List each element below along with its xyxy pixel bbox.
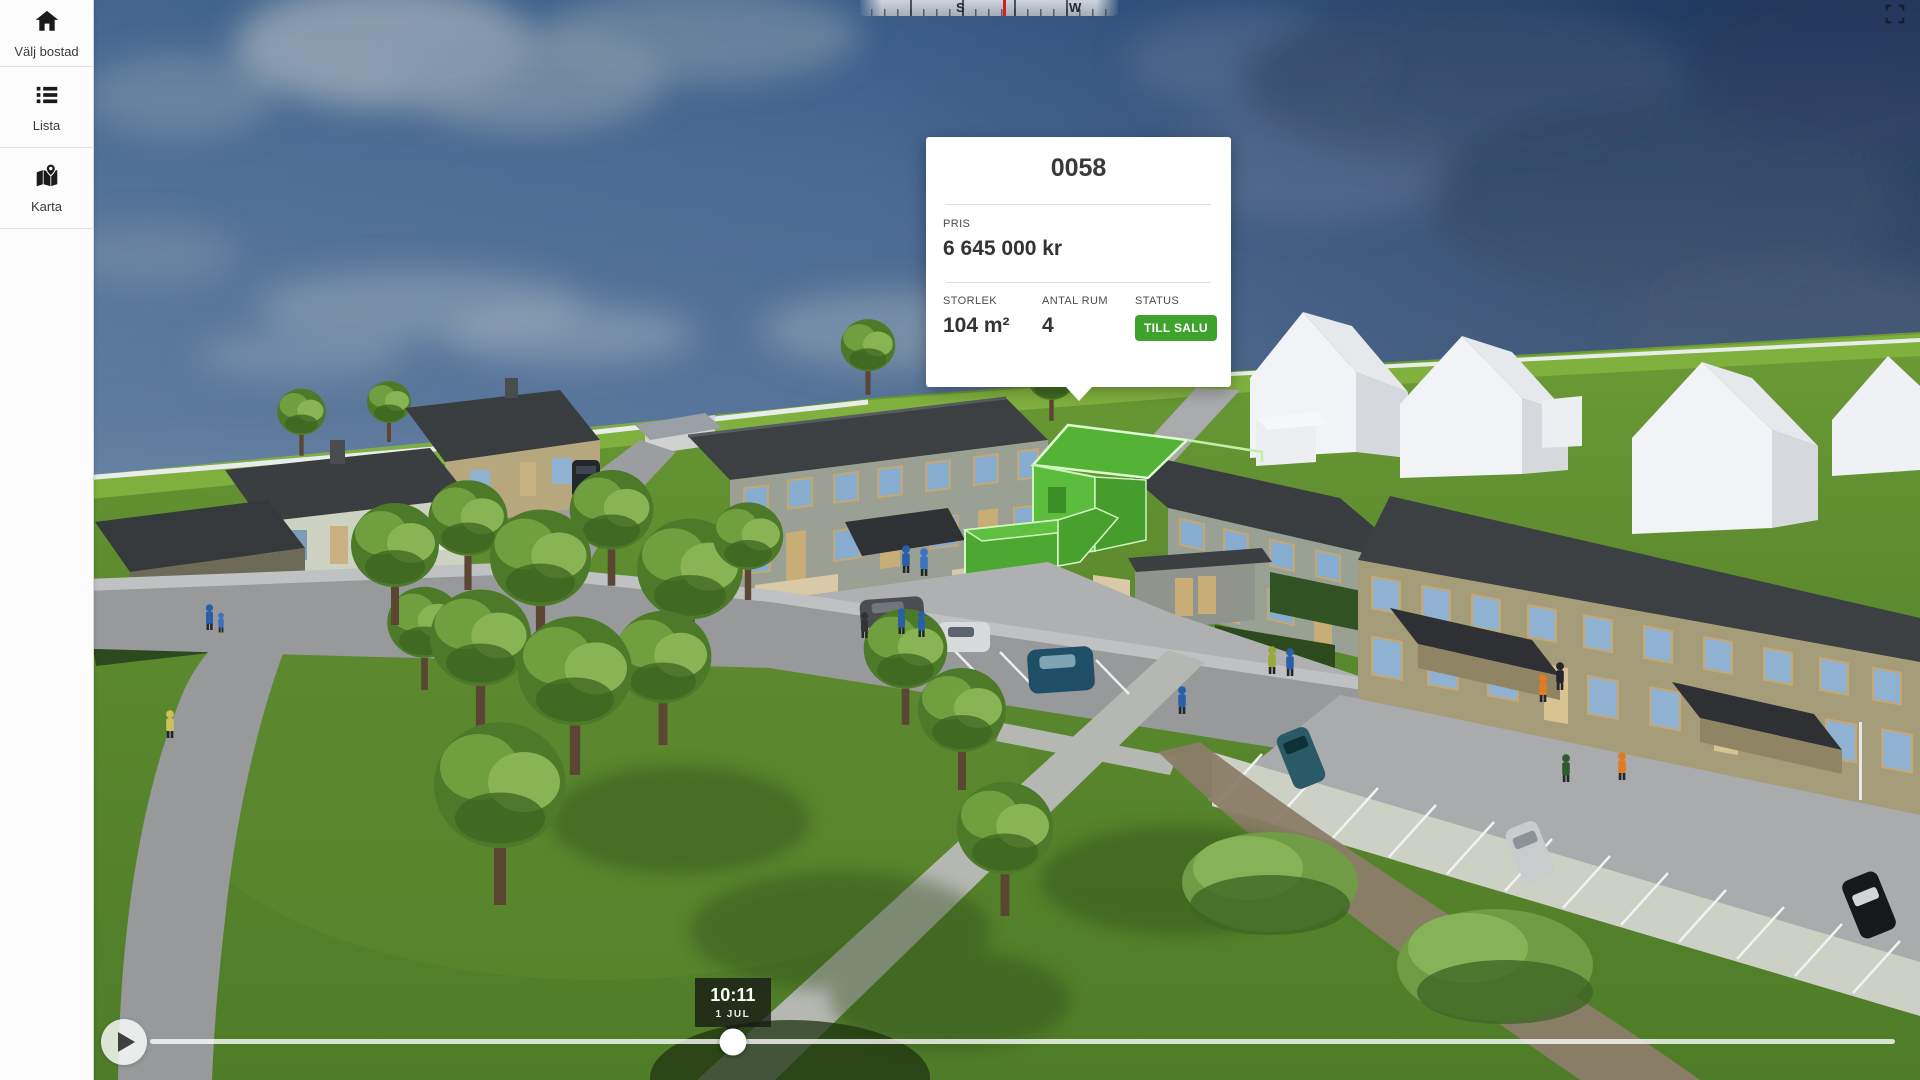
fullscreen-button[interactable] bbox=[1882, 2, 1908, 28]
property-id: 0058 bbox=[926, 137, 1231, 183]
list-icon bbox=[34, 82, 60, 108]
timeline-track[interactable]: 10:11 1 JUL bbox=[150, 1039, 1895, 1044]
sidebar-item-label: Välj bostad bbox=[14, 44, 78, 59]
status-badge: TILL SALU bbox=[1135, 315, 1217, 341]
sidebar-item-karta[interactable]: Karta bbox=[0, 148, 93, 229]
compass-needle bbox=[1003, 0, 1006, 16]
timeline-date: 1 JUL bbox=[707, 1009, 759, 1020]
sidebar-item-label: Lista bbox=[33, 118, 60, 133]
property-popup: 0058 PRIS 6 645 000 kr STORLEK 104 m² AN… bbox=[926, 137, 1231, 387]
sidebar: Välj bostad Lista Karta bbox=[0, 0, 94, 1080]
play-icon bbox=[118, 1032, 135, 1052]
compass-west-label: W bbox=[1069, 0, 1081, 15]
sidebar-item-valj-bostad[interactable]: Välj bostad bbox=[0, 0, 93, 67]
app-window: Välj bostad Lista Karta bbox=[0, 0, 1920, 1080]
timeline-time: 10:11 bbox=[707, 986, 759, 1004]
timeline-tooltip: 10:11 1 JUL bbox=[695, 978, 771, 1027]
size-value: 104 m² bbox=[943, 314, 1042, 338]
timeline-handle[interactable] bbox=[719, 1028, 746, 1055]
rooms-value: 4 bbox=[1042, 314, 1135, 338]
map-icon bbox=[34, 163, 60, 189]
sidebar-item-label: Karta bbox=[31, 199, 62, 214]
price-label: PRIS bbox=[943, 218, 1231, 230]
compass-strip: S W bbox=[858, 0, 1120, 16]
rooms-label: ANTAL RUM bbox=[1042, 295, 1135, 307]
price-value: 6 645 000 kr bbox=[943, 237, 1231, 261]
compass-south-label: S bbox=[956, 0, 965, 15]
sidebar-item-lista[interactable]: Lista bbox=[0, 67, 93, 148]
status-label: STATUS bbox=[1135, 295, 1217, 307]
fullscreen-icon bbox=[1884, 3, 1906, 25]
home-icon bbox=[34, 8, 60, 34]
play-button[interactable] bbox=[101, 1019, 147, 1065]
size-label: STORLEK bbox=[943, 295, 1042, 307]
